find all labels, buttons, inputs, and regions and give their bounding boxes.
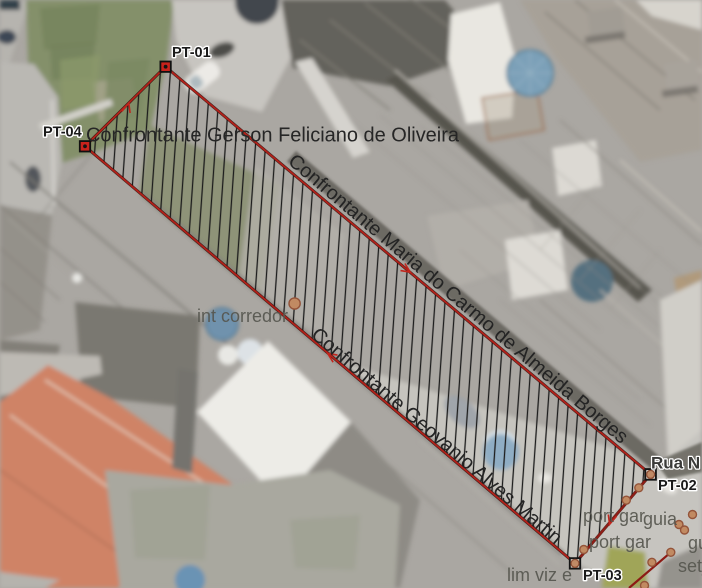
svg-text:guia: guia	[643, 509, 678, 529]
svg-text:set_: set_	[678, 556, 702, 577]
svg-text:Rua N: Rua N	[651, 454, 700, 473]
svg-text:port gar: port gar	[583, 506, 645, 526]
svg-text:gu: gu	[688, 533, 702, 553]
svg-text:PT-04: PT-04	[43, 125, 82, 141]
svg-text:PT-03: PT-03	[583, 568, 622, 584]
svg-text:lim viz e: lim viz e	[507, 565, 572, 585]
svg-text:int corredor: int corredor	[197, 306, 288, 326]
svg-text:Confrontante Gerson Feliciano: Confrontante Gerson Feliciano de Oliveir…	[86, 125, 460, 147]
svg-text:PT-01: PT-01	[172, 45, 211, 61]
svg-text:port gar: port gar	[589, 532, 651, 552]
svg-text:PT-02: PT-02	[658, 478, 697, 494]
